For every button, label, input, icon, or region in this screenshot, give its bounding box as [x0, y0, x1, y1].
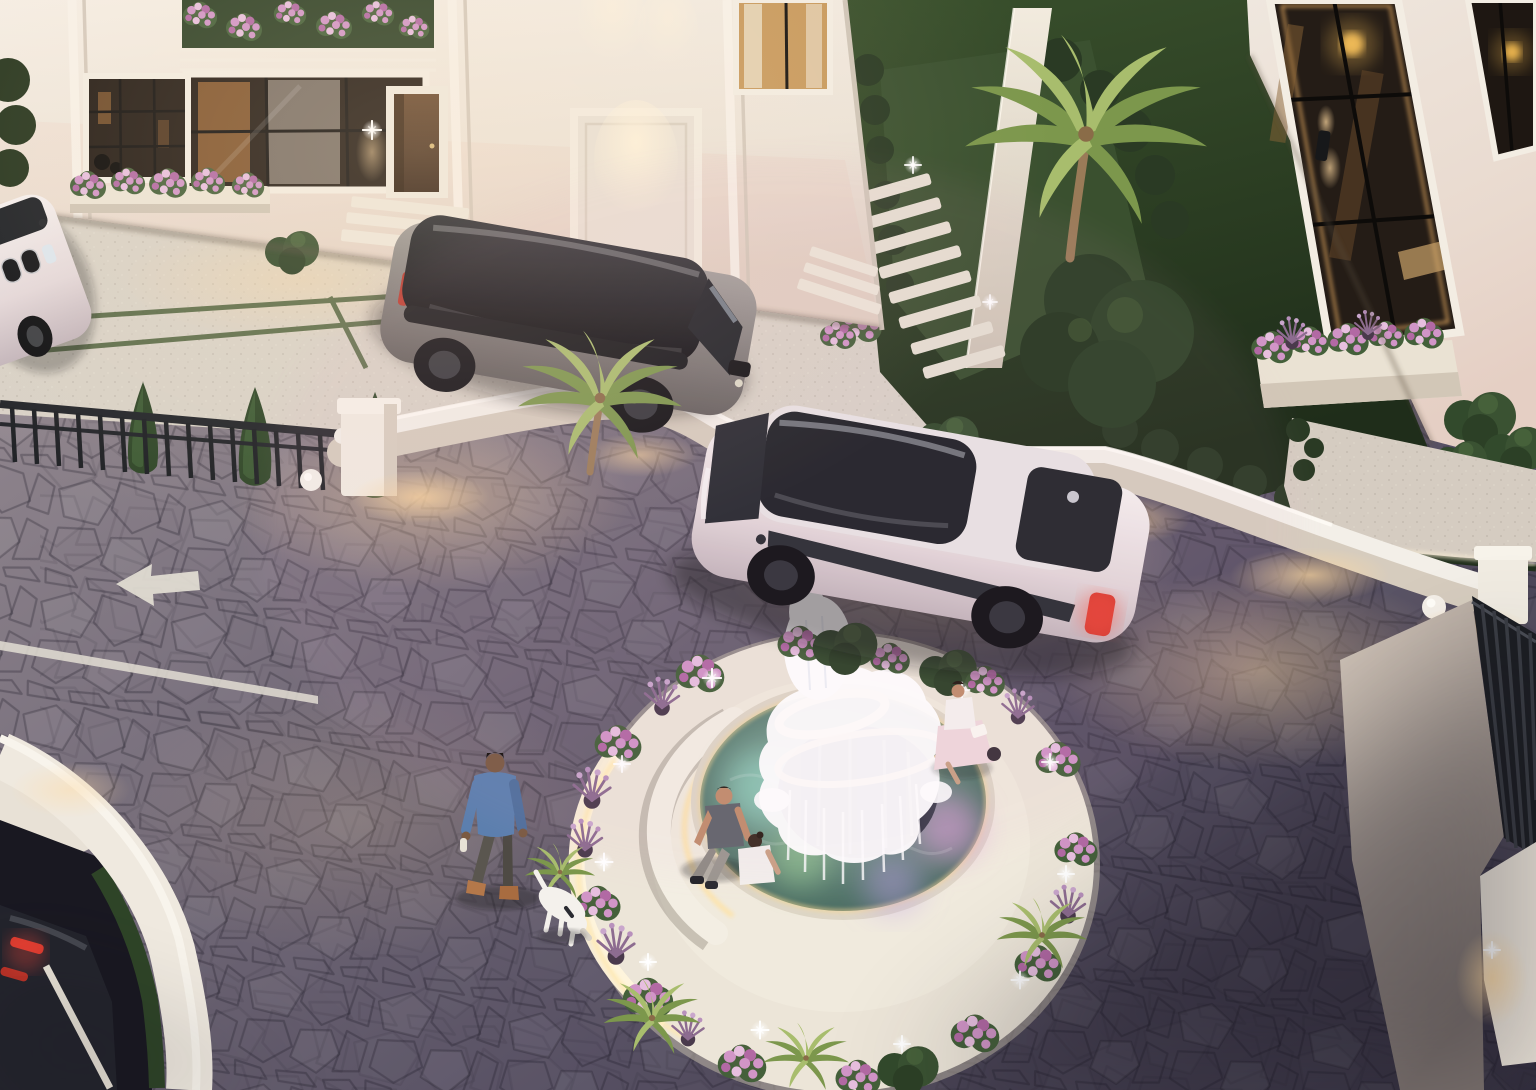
scene-canvas — [0, 0, 1536, 1090]
arch-light-pool — [10, 762, 130, 818]
man-shoe — [705, 881, 718, 889]
scene-render — [0, 0, 1536, 1090]
water-bottle — [460, 838, 467, 852]
man-shoe — [690, 876, 704, 884]
dusk-pink-tint — [260, 160, 1300, 880]
taillight-glow — [6, 932, 46, 972]
man-boot — [499, 886, 519, 900]
flower-box — [1251, 310, 1462, 408]
man-leg — [503, 830, 513, 886]
